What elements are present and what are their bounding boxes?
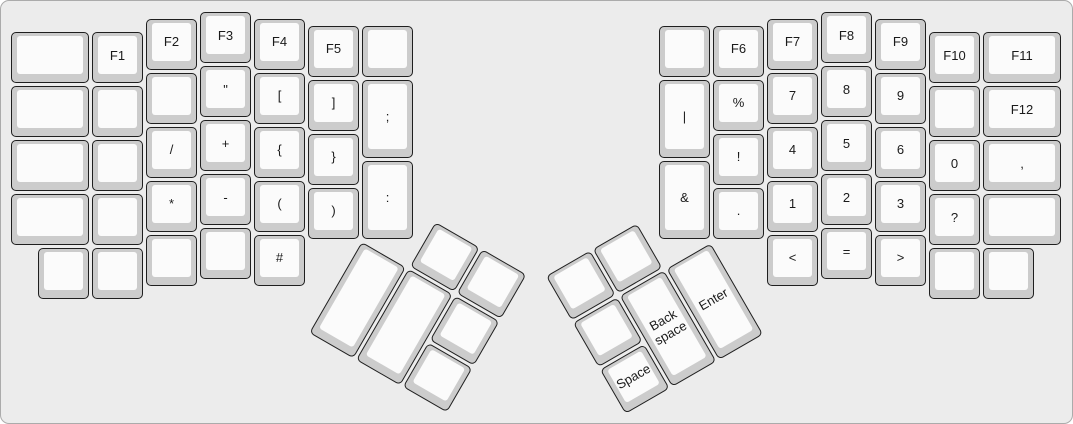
key-f11[interactable]: F11 <box>983 32 1061 83</box>
key-colon[interactable]: : <box>362 161 413 239</box>
key-label: 8 <box>827 70 866 108</box>
key-blank[interactable] <box>983 194 1061 245</box>
key-f5[interactable]: F5 <box>308 26 359 77</box>
key-bracket-open[interactable]: [ <box>254 73 305 124</box>
key-f1[interactable]: F1 <box>92 32 143 83</box>
key-brace-close[interactable]: } <box>308 134 359 185</box>
key-blank[interactable] <box>146 73 197 124</box>
key-label <box>17 144 83 182</box>
key-label <box>665 30 704 68</box>
key-label: F5 <box>314 30 353 68</box>
key-label: < <box>773 239 812 277</box>
key-label: F10 <box>935 36 974 74</box>
key-label: F4 <box>260 23 299 61</box>
key-digit-7[interactable]: 7 <box>767 73 818 124</box>
key-comma[interactable]: , <box>983 140 1061 191</box>
key-f3[interactable]: F3 <box>200 12 251 63</box>
key-label <box>420 228 473 280</box>
key-label: " <box>206 70 245 108</box>
key-label <box>152 239 191 277</box>
key-label: , <box>989 144 1055 182</box>
key-label <box>440 302 493 354</box>
key-label <box>152 77 191 115</box>
key-label: ] <box>314 84 353 122</box>
key-f12[interactable]: F12 <box>983 86 1061 137</box>
key-hash[interactable]: # <box>254 235 305 286</box>
key-blank[interactable] <box>200 228 251 279</box>
key-label <box>413 349 466 401</box>
key-label: ) <box>314 192 353 230</box>
key-label: F6 <box>719 30 758 68</box>
key-brace-open[interactable]: { <box>254 127 305 178</box>
key-digit-6[interactable]: 6 <box>875 127 926 178</box>
key-blank[interactable] <box>38 248 89 299</box>
key-blank[interactable] <box>92 194 143 245</box>
key-blank[interactable] <box>362 26 413 77</box>
key-bracket-close[interactable]: ] <box>308 80 359 131</box>
key-label: 6 <box>881 131 920 169</box>
key-f7[interactable]: F7 <box>767 19 818 70</box>
key-period[interactable]: . <box>713 188 764 239</box>
key-f2[interactable]: F2 <box>146 19 197 70</box>
key-label: 3 <box>881 185 920 223</box>
key-blank[interactable] <box>92 248 143 299</box>
key-label <box>17 36 83 74</box>
key-blank[interactable] <box>929 248 980 299</box>
key-label: ; <box>368 84 407 149</box>
key-label <box>467 255 520 307</box>
key-label: = <box>827 232 866 270</box>
key-digit-9[interactable]: 9 <box>875 73 926 124</box>
key-question[interactable]: ? <box>929 194 980 245</box>
key-label: 7 <box>773 77 812 115</box>
key-label <box>989 252 1028 290</box>
key-label: / <box>152 131 191 169</box>
key-less-than[interactable]: < <box>767 235 818 286</box>
key-blank[interactable] <box>11 86 89 137</box>
key-f6[interactable]: F6 <box>713 26 764 77</box>
key-blank[interactable] <box>92 140 143 191</box>
key-label <box>935 252 974 290</box>
key-label: F11 <box>989 36 1055 74</box>
key-label: F9 <box>881 23 920 61</box>
key-percent[interactable]: % <box>713 80 764 131</box>
key-paren-close[interactable]: ) <box>308 188 359 239</box>
key-slash[interactable]: / <box>146 127 197 178</box>
key-label: 1 <box>773 185 812 223</box>
key-label: : <box>368 165 407 230</box>
key-label: 0 <box>935 144 974 182</box>
key-label: } <box>314 138 353 176</box>
key-label: F2 <box>152 23 191 61</box>
key-greater-than[interactable]: > <box>875 235 926 286</box>
key-minus[interactable]: - <box>200 174 251 225</box>
key-label <box>98 252 137 290</box>
key-label <box>98 144 137 182</box>
key-blank[interactable] <box>929 86 980 137</box>
key-blank[interactable] <box>983 248 1034 299</box>
key-label: > <box>881 239 920 277</box>
key-label <box>600 230 653 282</box>
key-label: 5 <box>827 124 866 162</box>
key-label: - <box>206 178 245 216</box>
key-plus[interactable]: + <box>200 120 251 171</box>
key-label <box>368 30 407 68</box>
key-label <box>553 257 606 309</box>
key-digit-8[interactable]: 8 <box>821 66 872 117</box>
key-pipe[interactable]: | <box>659 80 710 158</box>
key-f10[interactable]: F10 <box>929 32 980 83</box>
key-f8[interactable]: F8 <box>821 12 872 63</box>
key-label: ! <box>719 138 758 176</box>
key-digit-3[interactable]: 3 <box>875 181 926 232</box>
key-asterisk[interactable]: * <box>146 181 197 232</box>
key-digit-5[interactable]: 5 <box>821 120 872 171</box>
key-label <box>98 90 137 128</box>
key-label: Space <box>607 350 660 402</box>
key-blank[interactable] <box>11 194 89 245</box>
key-blank[interactable] <box>92 86 143 137</box>
key-digit-4[interactable]: 4 <box>767 127 818 178</box>
key-label: F7 <box>773 23 812 61</box>
key-paren-open[interactable]: ( <box>254 181 305 232</box>
key-label: . <box>719 192 758 230</box>
key-f9[interactable]: F9 <box>875 19 926 70</box>
key-label: ( <box>260 185 299 223</box>
key-label <box>17 90 83 128</box>
key-digit-0[interactable]: 0 <box>929 140 980 191</box>
key-equals[interactable]: = <box>821 228 872 279</box>
key-label: 2 <box>827 178 866 216</box>
key-label <box>44 252 83 290</box>
key-f4[interactable]: F4 <box>254 19 305 70</box>
key-label: { <box>260 131 299 169</box>
key-exclamation[interactable]: ! <box>713 134 764 185</box>
key-label: 9 <box>881 77 920 115</box>
key-label <box>98 198 137 236</box>
key-label: * <box>152 185 191 223</box>
key-double-quote[interactable]: " <box>200 66 251 117</box>
key-label: + <box>206 124 245 162</box>
key-label: % <box>719 84 758 122</box>
key-ampersand[interactable]: & <box>659 161 710 239</box>
key-label: # <box>260 239 299 277</box>
key-label <box>935 90 974 128</box>
key-blank[interactable] <box>659 26 710 77</box>
key-label <box>17 198 83 236</box>
key-label: ? <box>935 198 974 236</box>
key-label <box>206 232 245 270</box>
key-label: F3 <box>206 16 245 54</box>
key-blank[interactable] <box>146 235 197 286</box>
key-label: & <box>665 165 704 230</box>
key-label: 4 <box>773 131 812 169</box>
key-blank[interactable] <box>11 140 89 191</box>
keyboard-case: F1F2/*F3"+-F4[{(#F5]});:|&F6%!.F7741<F88… <box>0 0 1073 424</box>
key-label: [ <box>260 77 299 115</box>
key-label: F12 <box>989 90 1055 128</box>
key-label: F8 <box>827 16 866 54</box>
key-semicolon[interactable]: ; <box>362 80 413 158</box>
key-digit-2[interactable]: 2 <box>821 174 872 225</box>
key-label: | <box>665 84 704 149</box>
key-blank[interactable] <box>11 32 89 83</box>
key-label <box>580 303 633 355</box>
key-label <box>989 198 1055 236</box>
key-label: F1 <box>98 36 137 74</box>
key-digit-1[interactable]: 1 <box>767 181 818 232</box>
